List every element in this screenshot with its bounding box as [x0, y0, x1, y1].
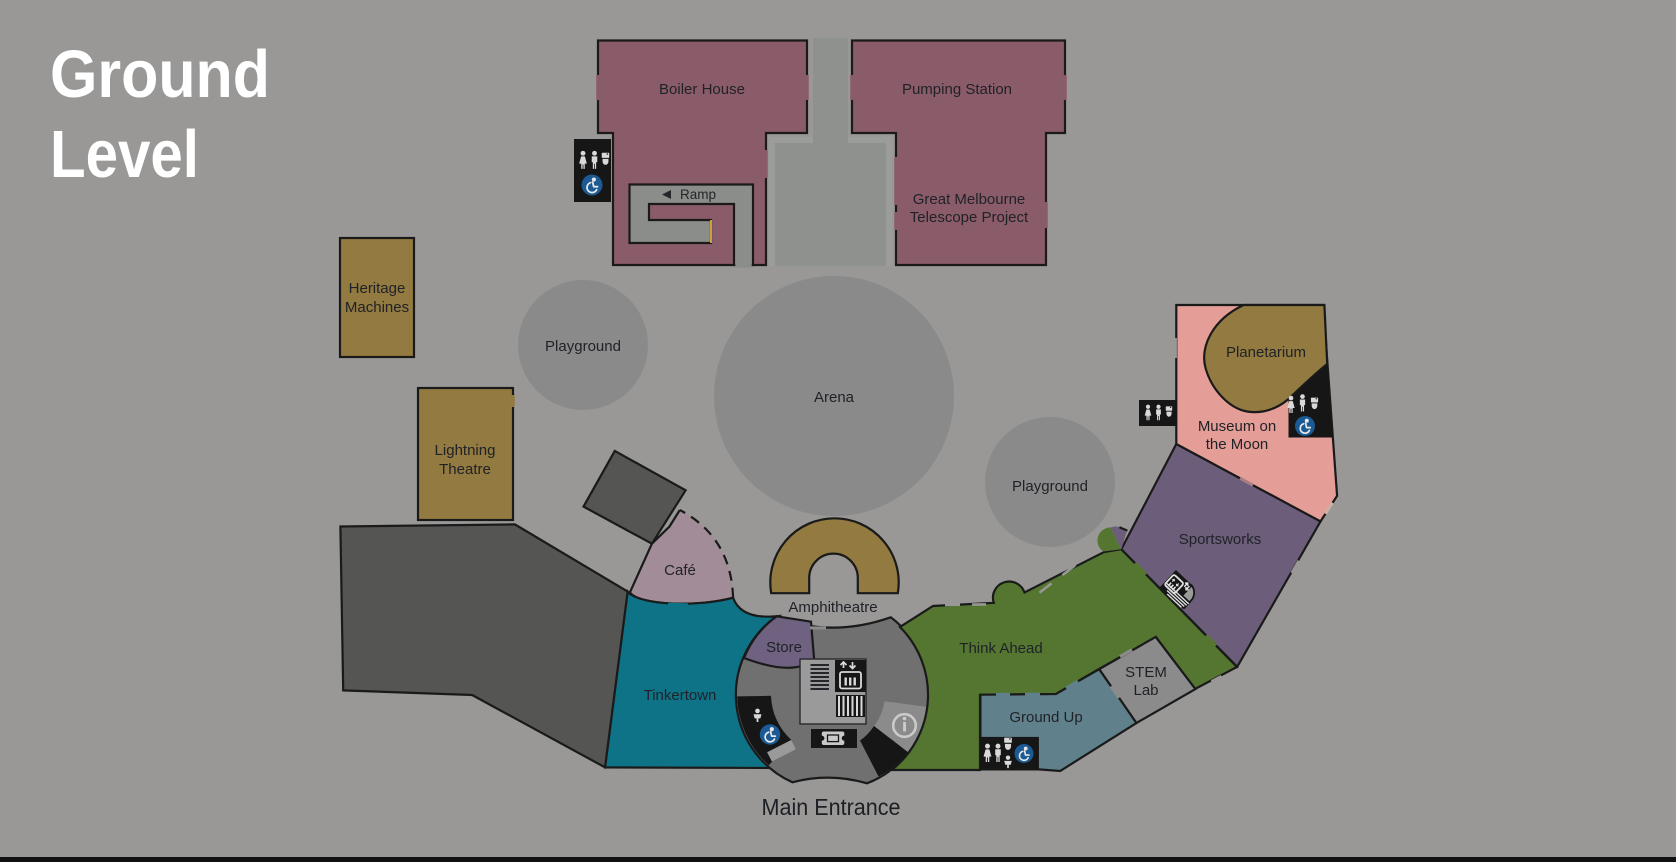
svg-text:Great Melbourne: Great Melbourne [913, 191, 1026, 208]
svg-text:Telescope Project: Telescope Project [910, 209, 1029, 226]
svg-text:Lightning: Lightning [435, 442, 496, 459]
svg-text:Ground Up: Ground Up [1009, 709, 1082, 726]
svg-text:the Moon: the Moon [1206, 436, 1269, 453]
svg-text:Store: Store [766, 639, 802, 656]
svg-text:Planetarium: Planetarium [1226, 344, 1306, 361]
svg-text:Playground: Playground [545, 338, 621, 355]
svg-text:Theatre: Theatre [439, 461, 491, 478]
svg-text:Lab: Lab [1133, 682, 1158, 699]
svg-text:Tinkertown: Tinkertown [644, 687, 717, 704]
svg-text:Boiler House: Boiler House [659, 81, 745, 98]
svg-text:Museum on: Museum on [1198, 418, 1276, 435]
svg-text:Arena: Arena [814, 389, 855, 406]
svg-text:Amphitheatre: Amphitheatre [788, 599, 877, 616]
svg-text:Pumping Station: Pumping Station [902, 81, 1012, 98]
svg-text:Level: Level [50, 117, 199, 192]
svg-text:Ground: Ground [50, 37, 270, 112]
svg-text:Main Entrance: Main Entrance [762, 794, 901, 820]
svg-text:Heritage: Heritage [349, 280, 406, 297]
svg-text:Ramp: Ramp [680, 187, 716, 202]
svg-text:Sportsworks: Sportsworks [1179, 531, 1262, 548]
svg-text:Café: Café [664, 562, 696, 579]
svg-text:Think Ahead: Think Ahead [959, 640, 1042, 657]
svg-text:Playground: Playground [1012, 478, 1088, 495]
svg-text:STEM: STEM [1125, 664, 1167, 681]
svg-text:Machines: Machines [345, 299, 409, 316]
